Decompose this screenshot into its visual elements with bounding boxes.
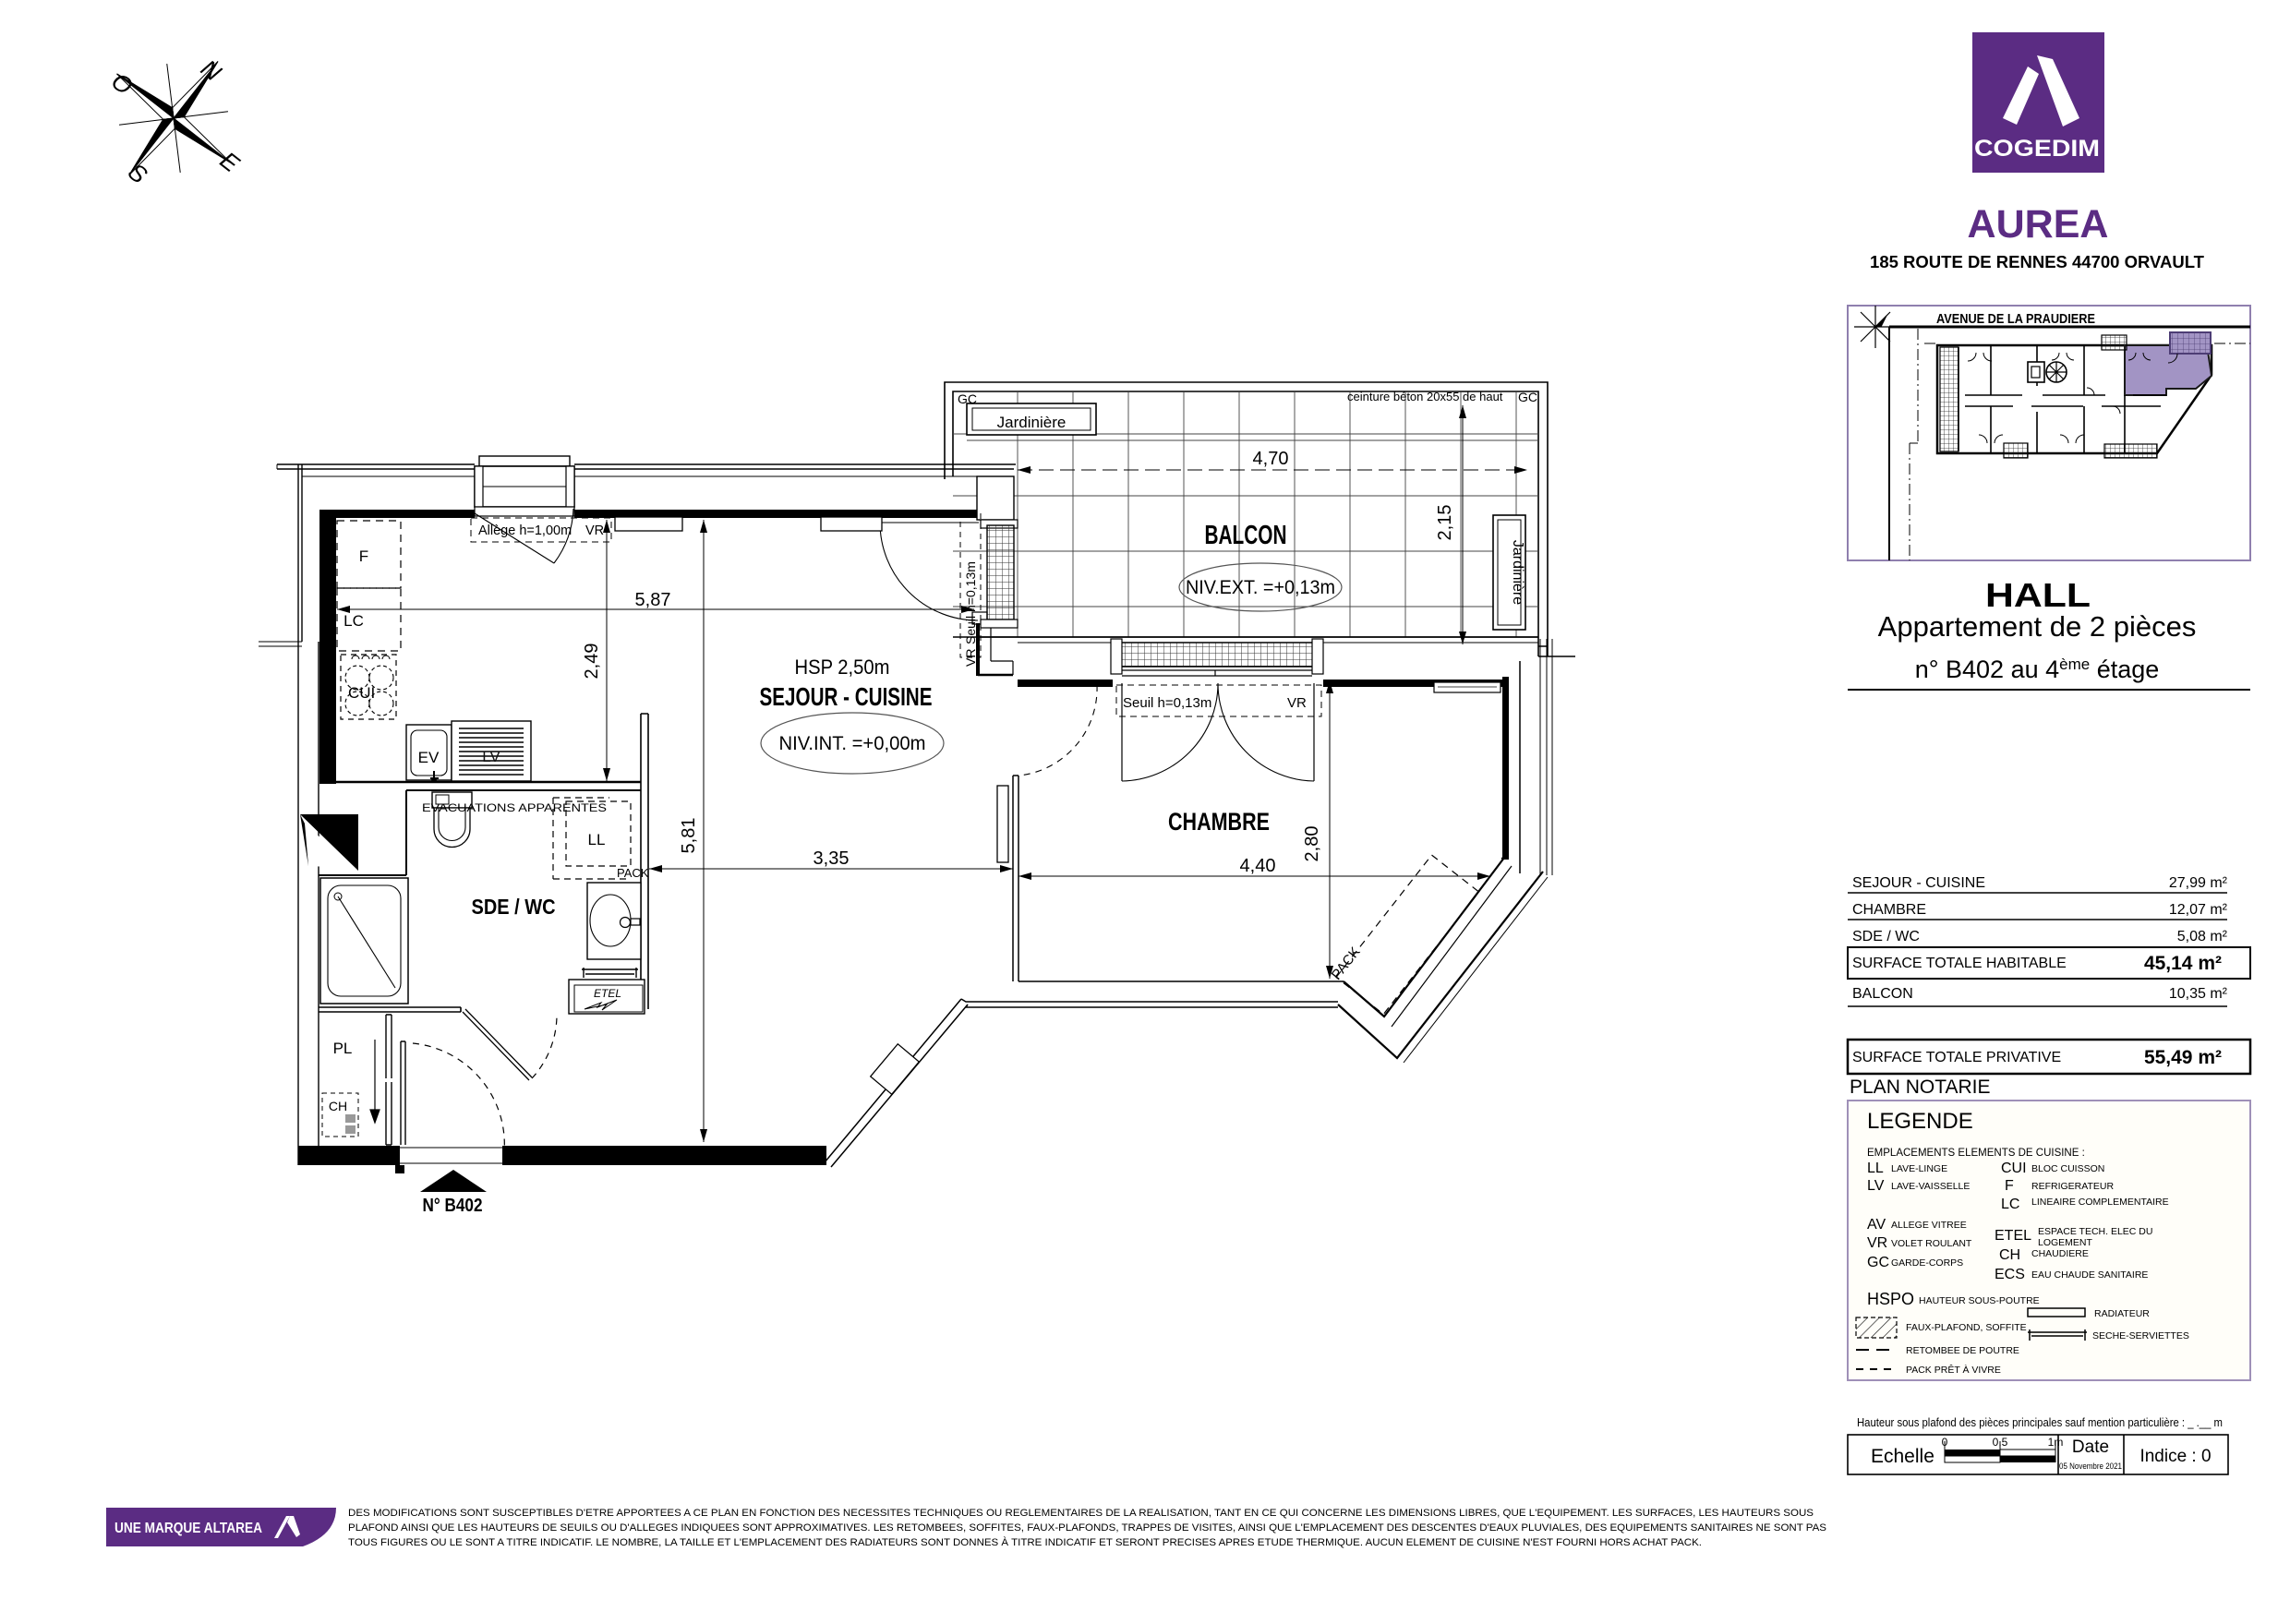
svg-text:ECS: ECS <box>1995 1267 2025 1282</box>
svg-text:REFRIGERATEUR: REFRIGERATEUR <box>2031 1181 2114 1192</box>
svg-text:SURFACE TOTALE PRIVATIVE: SURFACE TOTALE PRIVATIVE <box>1852 1050 2061 1065</box>
svg-text:PLAFOND AINSI QUE LES HAUTEURS: PLAFOND AINSI QUE LES HAUTEURS DE SEUILS… <box>348 1522 1826 1534</box>
svg-text:UNE MARQUE ALTAREA: UNE MARQUE ALTAREA <box>114 1521 262 1536</box>
svg-text:Jardinière: Jardinière <box>997 414 1067 431</box>
svg-text:HSP 2,50m: HSP 2,50m <box>795 656 890 679</box>
svg-text:LL: LL <box>1867 1161 1884 1176</box>
svg-text:CH: CH <box>1999 1247 2020 1263</box>
svg-text:5,87: 5,87 <box>635 590 671 610</box>
svg-text:27,99 m²: 27,99 m² <box>2169 875 2228 891</box>
svg-text:PACK PRÊT À VIVRE: PACK PRÊT À VIVRE <box>1906 1364 2001 1376</box>
svg-text:Indice : 0: Indice : 0 <box>2139 1447 2211 1466</box>
svg-text:EVACUATIONS APPARENTES: EVACUATIONS APPARENTES <box>422 803 607 814</box>
svg-text:Echelle: Echelle <box>1871 1446 1934 1467</box>
svg-text:AV: AV <box>1867 1217 1886 1233</box>
svg-text:SECHE-SERVIETTES: SECHE-SERVIETTES <box>2092 1330 2189 1341</box>
svg-text:CUI: CUI <box>2001 1161 2027 1176</box>
svg-text:ceinture béton 20x55 de haut: ceinture béton 20x55 de haut <box>1347 390 1503 403</box>
svg-text:FAUX-PLAFOND, SOFFITE: FAUX-PLAFOND, SOFFITE <box>1906 1322 2027 1333</box>
svg-text:10,35 m²: 10,35 m² <box>2169 986 2228 1002</box>
svg-text:F: F <box>2005 1178 2014 1194</box>
svg-text:LOGEMENT: LOGEMENT <box>2038 1237 2093 1248</box>
svg-text:EMPLACEMENTS ELEMENTS DE CUISI: EMPLACEMENTS ELEMENTS DE CUISINE : <box>1867 1148 2085 1159</box>
svg-text:Hauteur sous plafond des pièce: Hauteur sous plafond des pièces principa… <box>1857 1416 2223 1429</box>
svg-text:HSPO: HSPO <box>1867 1290 1914 1308</box>
svg-text:PLAN NOTARIE: PLAN NOTARIE <box>1850 1077 1990 1098</box>
svg-text:ESPACE TECH. ELEC DU: ESPACE TECH. ELEC DU <box>2038 1226 2152 1237</box>
svg-text:LAVE-VAISSELLE: LAVE-VAISSELLE <box>1891 1181 1970 1192</box>
svg-text:2,49: 2,49 <box>582 644 602 680</box>
svg-text:VR: VR <box>585 523 604 538</box>
svg-text:LL: LL <box>588 831 606 848</box>
svg-text:NIV.EXT. =+0,13m: NIV.EXT. =+0,13m <box>1186 577 1335 598</box>
svg-text:BALCON: BALCON <box>1852 986 1913 1002</box>
svg-text:LAVE-LINGE: LAVE-LINGE <box>1891 1163 1947 1174</box>
svg-text:Seuil h=0,13m: Seuil h=0,13m <box>963 561 978 644</box>
svg-text:SEJOUR - CUISINE: SEJOUR - CUISINE <box>760 682 933 711</box>
svg-text:HAUTEUR SOUS-POUTRE: HAUTEUR SOUS-POUTRE <box>1919 1295 2040 1306</box>
svg-text:2,15: 2,15 <box>1435 505 1455 541</box>
svg-text:ETEL: ETEL <box>594 987 621 1000</box>
svg-text:185 ROUTE DE RENNES 44700 ORVA: 185 ROUTE DE RENNES 44700 ORVAULT <box>1870 252 2205 271</box>
svg-text:ETEL: ETEL <box>1995 1228 2031 1244</box>
svg-text:ALLEGE VITREE: ALLEGE VITREE <box>1891 1220 1967 1231</box>
svg-text:n° B402 au 4ème étage: n° B402 au 4ème étage <box>1915 656 2160 683</box>
svg-text:NIV.INT. =+0,00m: NIV.INT. =+0,00m <box>779 733 926 754</box>
svg-text:VR: VR <box>1867 1235 1887 1251</box>
svg-text:5,81: 5,81 <box>679 818 699 854</box>
svg-text:Appartement de 2 pièces: Appartement de 2 pièces <box>1878 610 2197 643</box>
svg-text:GC: GC <box>1518 390 1537 404</box>
svg-text:5,08 m²: 5,08 m² <box>2177 929 2228 944</box>
svg-text:RADIATEUR: RADIATEUR <box>2094 1308 2150 1319</box>
svg-text:EAU CHAUDE SANITAIRE: EAU CHAUDE SANITAIRE <box>2031 1269 2148 1281</box>
svg-text:4,40: 4,40 <box>1240 856 1276 876</box>
svg-text:VOLET ROULANT: VOLET ROULANT <box>1891 1238 1972 1249</box>
svg-text:12,07 m²: 12,07 m² <box>2169 902 2228 918</box>
svg-text:45,14 m²: 45,14 m² <box>2144 953 2222 974</box>
svg-text:CUI: CUI <box>348 684 375 702</box>
svg-text:CHAMBRE: CHAMBRE <box>1168 808 1270 836</box>
svg-text:SDE / WC: SDE / WC <box>472 895 556 919</box>
svg-text:VR: VR <box>1287 695 1307 711</box>
svg-text:LINEAIRE COMPLEMENTAIRE: LINEAIRE COMPLEMENTAIRE <box>2031 1197 2169 1208</box>
svg-text:LV: LV <box>482 748 500 765</box>
svg-text:CHAUDIERE: CHAUDIERE <box>2031 1248 2089 1259</box>
svg-text:DES MODIFICATIONS SONT SUSCEPT: DES MODIFICATIONS SONT SUSCEPTIBLES D'ET… <box>348 1508 1814 1519</box>
svg-text:F: F <box>359 547 368 565</box>
svg-text:EV: EV <box>418 749 440 766</box>
svg-text:VR: VR <box>963 649 978 667</box>
svg-text:Jardinière: Jardinière <box>1510 540 1525 605</box>
svg-text:CHAMBRE: CHAMBRE <box>1852 902 1926 918</box>
svg-text:LEGENDE: LEGENDE <box>1867 1109 1973 1134</box>
svg-text:LV: LV <box>1867 1178 1885 1194</box>
svg-text:N° B402: N° B402 <box>423 1196 483 1216</box>
svg-text:SDE / WC: SDE / WC <box>1852 929 1920 944</box>
svg-text:PL: PL <box>333 1040 353 1057</box>
svg-text:BALCON: BALCON <box>1205 521 1287 550</box>
svg-text:TOUS FIGURES OU LE SONT A TITR: TOUS FIGURES OU LE SONT A TITRE INDICATI… <box>348 1536 1702 1548</box>
svg-text:AUREA: AUREA <box>1968 202 2109 247</box>
svg-text:BLOC CUISSON: BLOC CUISSON <box>2031 1163 2104 1174</box>
svg-text:COGEDIM: COGEDIM <box>1974 136 2100 162</box>
svg-text:Seuil h=0,13m: Seuil h=0,13m <box>1123 695 1211 711</box>
svg-text:4,70: 4,70 <box>1253 449 1289 469</box>
svg-text:GARDE-CORPS: GARDE-CORPS <box>1891 1257 1963 1269</box>
svg-text:GC: GC <box>1867 1255 1889 1270</box>
svg-text:SEJOUR - CUISINE: SEJOUR - CUISINE <box>1852 875 1985 891</box>
svg-text:05 Novembre 2021: 05 Novembre 2021 <box>2059 1462 2122 1472</box>
svg-text:HALL: HALL <box>1985 576 2091 614</box>
svg-text:LC: LC <box>343 612 364 630</box>
svg-text:LC: LC <box>2001 1197 2019 1212</box>
svg-text:CH: CH <box>329 1099 347 1113</box>
svg-text:55,49 m²: 55,49 m² <box>2144 1047 2222 1068</box>
svg-text:GC: GC <box>958 391 977 406</box>
svg-text:PACK: PACK <box>617 866 649 880</box>
svg-text:Allège h=1,00m: Allège h=1,00m <box>478 523 572 538</box>
svg-text:AVENUE DE LA PRAUDIERE: AVENUE DE LA PRAUDIERE <box>1936 311 2095 327</box>
svg-text:RETOMBEE DE POUTRE: RETOMBEE DE POUTRE <box>1906 1345 2019 1356</box>
svg-text:SURFACE TOTALE HABITABLE: SURFACE TOTALE HABITABLE <box>1852 956 2067 971</box>
svg-text:Date: Date <box>2072 1438 2109 1457</box>
svg-text:2,80: 2,80 <box>1302 826 1322 862</box>
svg-text:3,35: 3,35 <box>814 848 850 869</box>
